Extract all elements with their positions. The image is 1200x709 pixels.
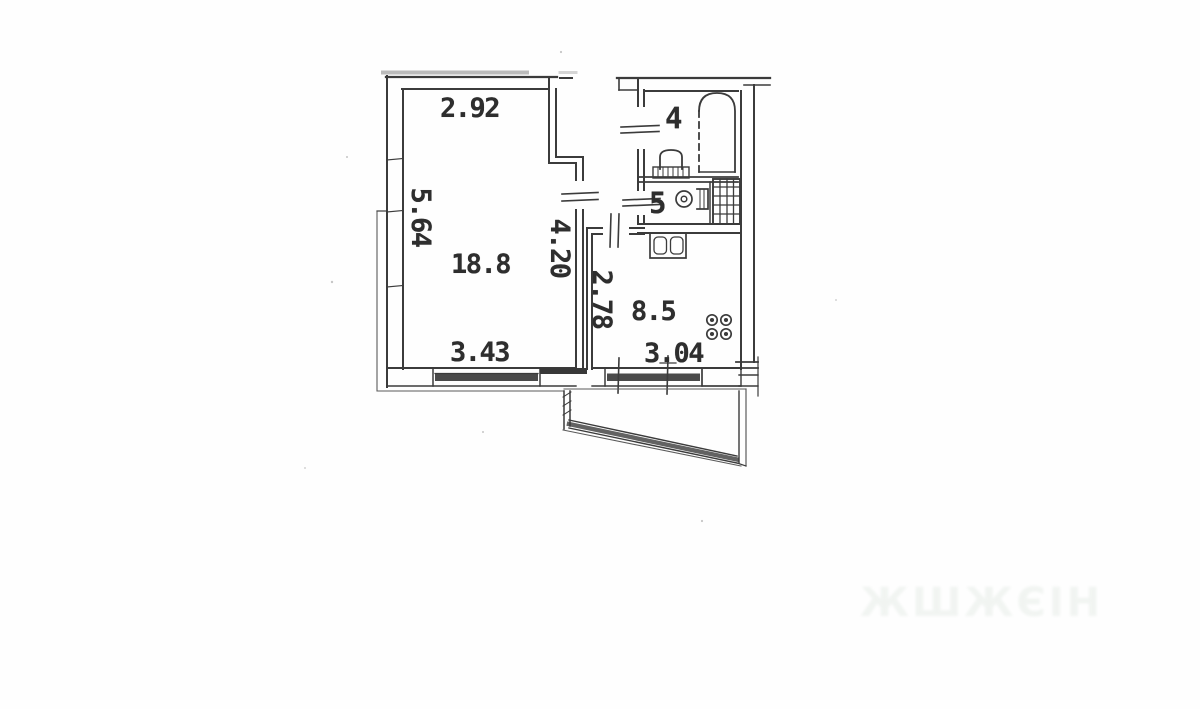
washbasin-icon [653, 150, 689, 178]
dim-living-width-bottom: 3.43 [450, 339, 509, 366]
scan-speckles [304, 51, 837, 522]
living-area-label: 18.8 [451, 251, 510, 278]
dim-living-width-top: 2.92 [440, 95, 499, 122]
kitchen-sink-icon [650, 234, 686, 258]
toilet-icon [676, 189, 708, 209]
kitchen-area-label: 8.5 [631, 298, 675, 325]
dim-kitchen-depth-left: 2.78 [587, 263, 615, 335]
bathtub-icon [699, 93, 735, 172]
bathroom-number-label: 4 [665, 104, 681, 133]
floorplan-page: 2.92 5.64 18.8 4.20 3.43 2.78 8.5 3.04 4… [0, 0, 1200, 709]
watermark-text: ЖШЖЄІН [860, 580, 1160, 628]
dim-living-depth-left: 5.64 [406, 181, 434, 253]
balcony-group [563, 389, 746, 466]
dim-kitchen-width-bottom: 3.04 [644, 340, 703, 367]
vent-shaft-grid [713, 179, 740, 224]
balcony-railing [569, 420, 737, 463]
stove-icon [707, 315, 731, 339]
toilet-number-label: 5 [649, 189, 665, 218]
dim-living-depth-right: 4.20 [545, 212, 573, 284]
